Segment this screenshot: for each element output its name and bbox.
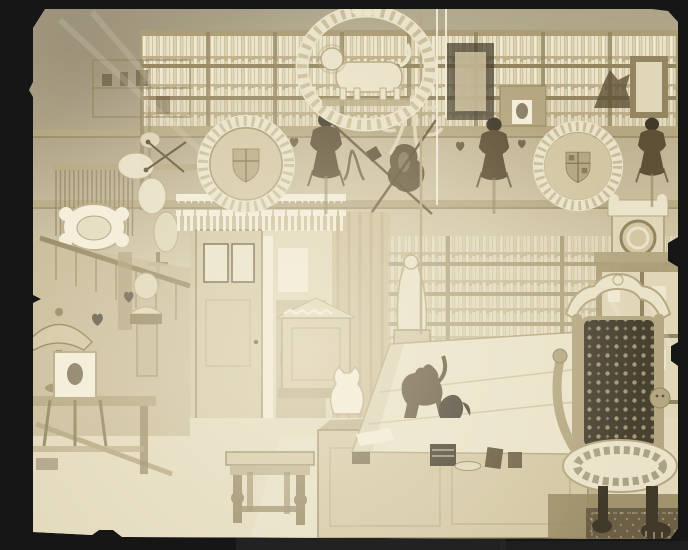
photo-mount: Interior of a cluttered Victorian collec… [0,0,688,550]
photograph [16,6,688,550]
study-photo: Interior of a cluttered Victorian collec… [0,0,688,550]
photo-fade-haze [29,9,678,540]
mount-sheen-right [500,541,688,550]
